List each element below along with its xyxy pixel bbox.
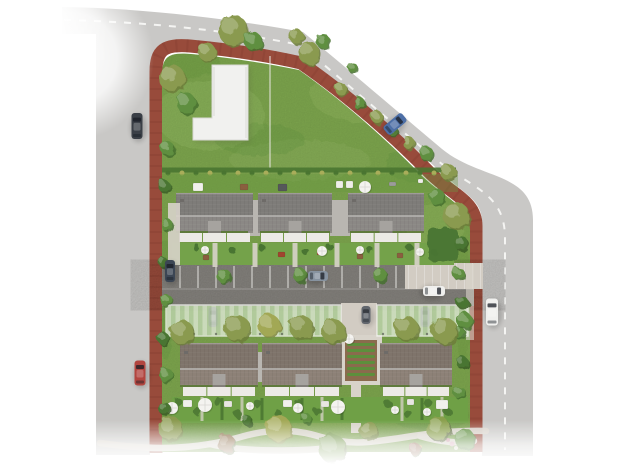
garden-hedge-clump bbox=[367, 247, 374, 254]
chimney bbox=[352, 199, 356, 202]
tree-highlight bbox=[161, 295, 168, 302]
post bbox=[281, 333, 283, 335]
tree-highlight bbox=[348, 63, 354, 69]
tree-highlight bbox=[453, 268, 460, 275]
tree-highlight bbox=[323, 321, 336, 334]
eave-shadow bbox=[176, 231, 253, 233]
unit-awning bbox=[375, 233, 398, 242]
unit-front-path bbox=[293, 243, 298, 267]
house bbox=[348, 193, 424, 242]
tree-highlight bbox=[162, 220, 169, 227]
planting-row bbox=[347, 355, 375, 358]
garden-hedge-clump bbox=[407, 245, 414, 252]
west-drive-path bbox=[168, 203, 180, 265]
unit-front-path bbox=[253, 243, 258, 267]
unit-awning bbox=[351, 233, 374, 242]
unit-awning bbox=[179, 233, 202, 242]
garden-hedge-clump bbox=[303, 249, 310, 256]
car-windshield bbox=[437, 288, 441, 295]
car-roof-highlight bbox=[167, 268, 173, 275]
eave-shadow bbox=[348, 231, 424, 233]
car-windshield bbox=[136, 365, 144, 369]
tree-highlight bbox=[172, 322, 185, 335]
tree-highlight bbox=[354, 98, 361, 105]
garden-furniture bbox=[336, 181, 343, 188]
tree-highlight bbox=[218, 270, 226, 278]
tree-highlight bbox=[336, 84, 343, 91]
chimney bbox=[184, 351, 188, 354]
unit-awning bbox=[307, 233, 329, 242]
tree-highlight bbox=[294, 269, 302, 277]
eave-shadow bbox=[258, 231, 332, 233]
garden-hedge-clump bbox=[327, 244, 334, 251]
tree-highlight bbox=[420, 147, 428, 155]
garden-hedge-clump bbox=[259, 245, 266, 252]
tree-highlight bbox=[441, 165, 450, 174]
car-rear-window bbox=[310, 273, 313, 280]
tree-highlight bbox=[290, 30, 298, 38]
garden-hedge-clump bbox=[229, 247, 236, 254]
car-rear-window bbox=[363, 319, 369, 322]
unit-awning bbox=[398, 233, 421, 242]
house bbox=[380, 343, 452, 396]
tree-highlight bbox=[159, 181, 166, 188]
tree-highlight bbox=[404, 138, 411, 145]
garden-furniture bbox=[397, 253, 403, 258]
car-rear-window bbox=[488, 321, 497, 324]
tree-highlight bbox=[226, 317, 240, 331]
tree-highlight bbox=[160, 369, 168, 377]
tree-highlight bbox=[457, 357, 464, 364]
tree-highlight bbox=[433, 319, 447, 333]
eave-shadow bbox=[180, 385, 258, 387]
car-rear-window bbox=[136, 381, 144, 384]
planting-row bbox=[347, 349, 375, 352]
tree-highlight bbox=[372, 112, 379, 119]
house bbox=[176, 193, 253, 242]
tree-highlight bbox=[291, 317, 304, 330]
unit-awning bbox=[203, 233, 226, 242]
garden-furniture bbox=[278, 184, 287, 191]
top-road-fade bbox=[40, 0, 120, 60]
planting-row bbox=[347, 373, 375, 376]
garden-furniture bbox=[193, 183, 203, 191]
site-plan-svg bbox=[0, 0, 640, 470]
garden-furniture bbox=[346, 181, 353, 188]
tree-highlight bbox=[430, 190, 439, 199]
unit-awning bbox=[227, 233, 250, 242]
tree-highlight bbox=[200, 44, 210, 54]
tree-highlight bbox=[457, 297, 464, 304]
car-roof-highlight bbox=[364, 313, 369, 318]
chimney bbox=[384, 351, 388, 354]
tree-highlight bbox=[246, 33, 256, 43]
shared-garden-strip bbox=[162, 174, 458, 192]
garden-furniture bbox=[240, 184, 248, 190]
tree-highlight bbox=[300, 44, 312, 56]
car-roof-highlight bbox=[430, 288, 437, 294]
car-windshield bbox=[363, 309, 369, 313]
eave-shadow bbox=[380, 385, 452, 387]
tree-highlight bbox=[158, 333, 165, 340]
car-windshield bbox=[320, 273, 324, 280]
tree-highlight bbox=[317, 35, 325, 43]
chimney bbox=[180, 199, 184, 202]
car-rear-window bbox=[425, 288, 428, 295]
garden-furniture bbox=[418, 179, 423, 183]
post bbox=[259, 333, 261, 335]
post bbox=[426, 333, 428, 335]
unit-awning bbox=[261, 233, 283, 242]
car-roof-highlight bbox=[488, 309, 496, 317]
tree-highlight bbox=[221, 17, 238, 34]
car-windshield bbox=[167, 264, 174, 268]
car-roof-highlight bbox=[137, 370, 144, 378]
tree-highlight bbox=[445, 204, 459, 218]
house-connector bbox=[330, 200, 350, 236]
garden-furniture bbox=[203, 255, 209, 260]
house bbox=[180, 343, 258, 396]
tree-highlight bbox=[159, 258, 165, 264]
tree-highlight bbox=[457, 313, 466, 322]
bottom-fade bbox=[0, 390, 640, 470]
garden-furniture bbox=[278, 252, 285, 257]
car-rear-window bbox=[167, 277, 174, 280]
car-windshield bbox=[488, 303, 497, 307]
post bbox=[382, 333, 384, 335]
unit-awning bbox=[284, 233, 306, 242]
planting-row bbox=[347, 361, 375, 364]
garden-furniture bbox=[389, 182, 396, 186]
site-plan-rendering bbox=[0, 0, 640, 470]
post bbox=[215, 333, 217, 335]
chimney bbox=[262, 199, 266, 202]
hedge-block bbox=[428, 228, 458, 262]
tree-highlight bbox=[455, 237, 463, 245]
planting-row bbox=[347, 367, 375, 370]
tree-highlight bbox=[260, 316, 272, 328]
unit-front-path bbox=[213, 243, 218, 267]
eave-shadow bbox=[262, 385, 342, 387]
garden-hedge-clump bbox=[193, 244, 200, 251]
unit-front-path bbox=[335, 243, 340, 267]
tree-highlight bbox=[374, 269, 382, 277]
house bbox=[258, 193, 332, 242]
chimney bbox=[266, 351, 270, 354]
tree-highlight bbox=[396, 318, 409, 331]
car-roof-highlight bbox=[314, 273, 320, 279]
unit-front-path bbox=[375, 243, 380, 267]
house bbox=[262, 343, 342, 396]
